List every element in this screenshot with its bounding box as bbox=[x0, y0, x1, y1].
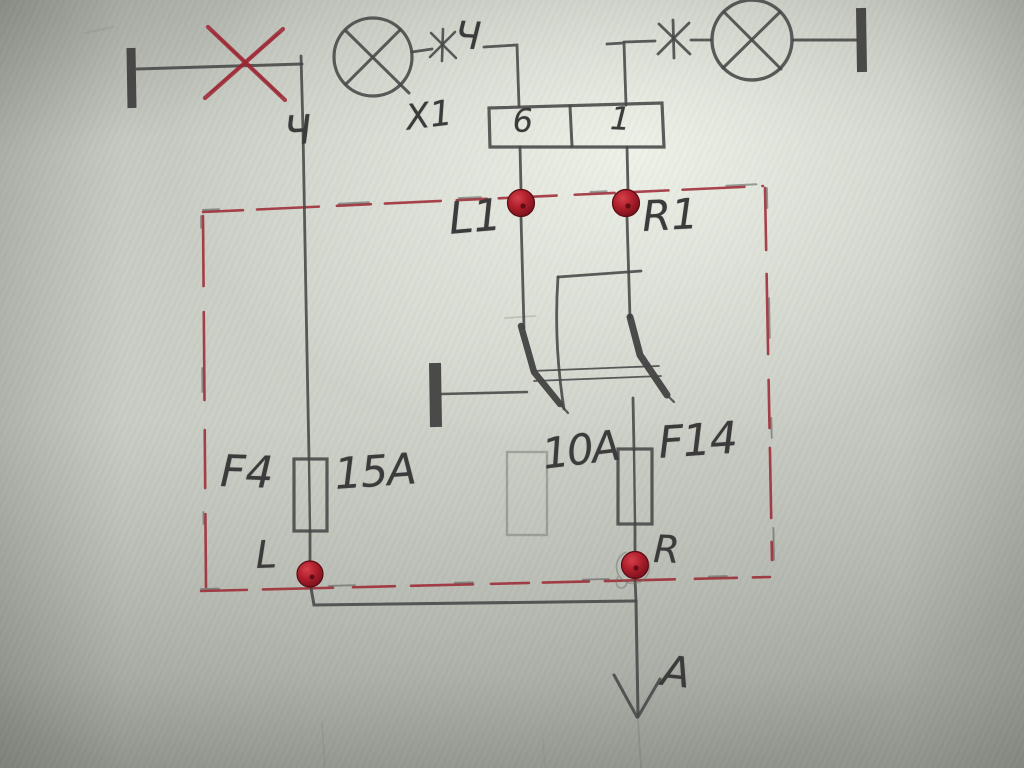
lamp-icon-left bbox=[334, 18, 412, 96]
fuse-left-name: F4 bbox=[219, 450, 274, 496]
blade-linkage-line bbox=[532, 366, 659, 371]
fuse-left-rating: 15A bbox=[333, 448, 417, 497]
lamp-icon-right bbox=[712, 0, 792, 80]
lamp-left-mark: Ч bbox=[454, 16, 482, 55]
terminal-label-r: R bbox=[653, 530, 681, 569]
wire-l1-down bbox=[521, 217, 524, 328]
erased-fuse-ghost bbox=[507, 452, 547, 535]
center-pole-wire bbox=[557, 277, 564, 409]
boundary-left bbox=[203, 216, 206, 587]
terminal-bar-left bbox=[131, 48, 132, 108]
connection-dot-l1 bbox=[508, 190, 535, 217]
fuse-right-rating: 10A bbox=[540, 425, 621, 476]
output-arrow-label: A bbox=[660, 650, 693, 695]
connector-label: X1 bbox=[404, 96, 454, 136]
boundary-right bbox=[765, 188, 772, 560]
wire-lamp-left-out bbox=[412, 49, 432, 52]
wire-label-ch: Ч bbox=[283, 110, 313, 152]
switch-blade-right bbox=[630, 317, 674, 402]
connection-dot-r bbox=[616, 551, 649, 588]
connector-pin-1: 1 bbox=[609, 102, 631, 135]
terminal-label-l1: L1 bbox=[447, 193, 503, 241]
asterisk-icon-right bbox=[658, 20, 690, 58]
terminal-dots bbox=[297, 190, 650, 588]
wire-to-fuse-right bbox=[633, 398, 634, 450]
fuse-symbol-right bbox=[618, 449, 652, 552]
paper-photo: Ч Ч X1 6 1 L1 R1 F4 15A 10A F14 L R A bbox=[0, 0, 1024, 768]
right-feed-branch bbox=[607, 0, 862, 105]
terminal-bar-right bbox=[861, 8, 862, 72]
terminal-label-l: L bbox=[255, 535, 277, 574]
output-shaft bbox=[636, 601, 638, 714]
wire-left-feed bbox=[137, 64, 302, 69]
connection-dot-r1 bbox=[613, 190, 640, 217]
connector-pin-6: 6 bbox=[512, 104, 533, 137]
wire-to-connector-left bbox=[484, 45, 519, 106]
boundary-bottom bbox=[201, 577, 770, 591]
terminal-label-r1: R1 bbox=[641, 193, 699, 238]
wire-pin6-down bbox=[520, 147, 521, 190]
output-wiring bbox=[311, 579, 660, 717]
wire-bottom-run bbox=[311, 588, 634, 605]
switch-mechanism bbox=[435, 217, 674, 535]
blade-linkage-line bbox=[534, 376, 661, 381]
wire-to-connector-right bbox=[607, 43, 626, 105]
wire-right-feed bbox=[624, 41, 655, 42]
connection-dot-l bbox=[297, 561, 323, 587]
switch-contact-bar bbox=[435, 363, 527, 427]
wire-r1-down bbox=[627, 217, 630, 318]
fuse-symbol-left bbox=[294, 459, 327, 562]
dashed-boundary-box bbox=[201, 184, 774, 591]
wire-r-down bbox=[635, 579, 636, 601]
wire-pin1-down bbox=[627, 147, 628, 190]
asterisk-icon-left bbox=[430, 29, 456, 61]
fuse-right-name: F14 bbox=[657, 417, 738, 466]
